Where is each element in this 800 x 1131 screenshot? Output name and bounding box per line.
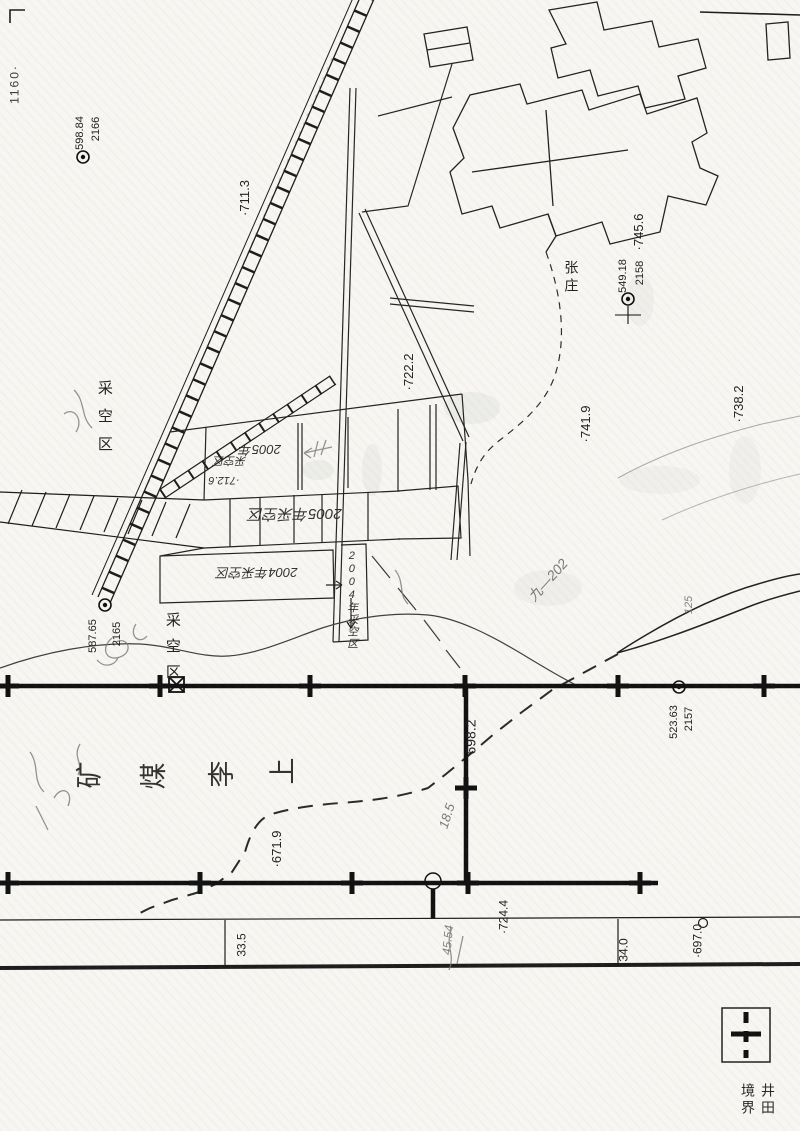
railway-branch [159,376,336,498]
elevation-point-697-0: ·697.0 [692,924,705,958]
legend-box [722,1008,770,1062]
boundary-line-lower [0,872,658,919]
bottom-band [0,917,800,968]
pencil-note-45-54: 45.54 [440,924,455,955]
village-boundary-dashed [471,252,561,484]
goaf-2004-box-label: 2004年采空区 [345,550,357,650]
seam-outcrop-lens [617,574,800,653]
benchmark-2158-number: 2158 [635,261,647,285]
elevation-point-698-2: 698.2 [464,719,479,754]
scan-smudges [302,274,761,606]
mine-name-char-li: 李 [208,761,236,788]
elevation-point-738-2: ·738.2 [732,386,746,423]
benchmark-icon [77,151,89,163]
elevation-point-711-3: ·711.3 [238,180,252,216]
elevation-point-671-9: ·671.9 [270,831,284,868]
map-frame-marks [10,10,800,23]
handwritten-712-6: ·712.6 [208,473,239,485]
elevation-point-724-4: ·724.4 [498,900,511,934]
benchmark-2166-elevation: 598.84 [75,116,87,150]
goaf-area-label-2: 采空区 [164,612,180,690]
legend-label: 井田境界 [738,1083,778,1131]
benchmark-2165-number: 2165 [112,622,124,646]
benchmark-2157-elevation: 523.63 [669,705,681,739]
dashed-links [372,556,460,668]
distance-33-5: 33.5 [236,933,249,956]
village-name-zhangzhuang: 张庄 [564,260,579,296]
pencil-note-125: 125 [684,596,696,614]
railway-siding [0,490,204,548]
scanned-mine-map: { "map_title": "上李煤矿 (mine plan scan)", … [0,0,800,1131]
benchmark-2157-number: 2157 [684,707,696,731]
elevation-point-722-2: ·722.2 [402,354,416,391]
mine-name-char-shang: 上 [269,758,297,785]
boundary-line-vertical [455,686,477,883]
elevation-point-741-9: ·741.9 [579,406,593,443]
mine-name-char-mei: 煤 [140,763,168,790]
handwritten-2005-goaf: 2005年采空区 [248,505,341,521]
grid-coordinate-1160: 1160· [9,64,22,104]
boundary-symbol-icon [731,1012,761,1058]
elevation-point-745-6: ·745.6 [632,214,646,251]
benchmark-2158-elevation: 549.18 [618,259,630,293]
village-compound-outlines [424,2,790,252]
handwritten-2004-goaf: 2004年采空区 [217,565,298,579]
benchmark-2165-elevation: 587.65 [88,619,100,653]
map-drawing [0,0,800,1131]
mine-name-char-kuang: 矿 [76,762,104,789]
handwritten-goaf: 采空区 [214,453,247,465]
benchmark-icon [99,599,111,611]
distance-34-0: 34.0 [618,938,631,961]
goaf-area-label-1: 采空区 [96,380,112,464]
benchmark-2166-number: 2166 [91,117,103,141]
